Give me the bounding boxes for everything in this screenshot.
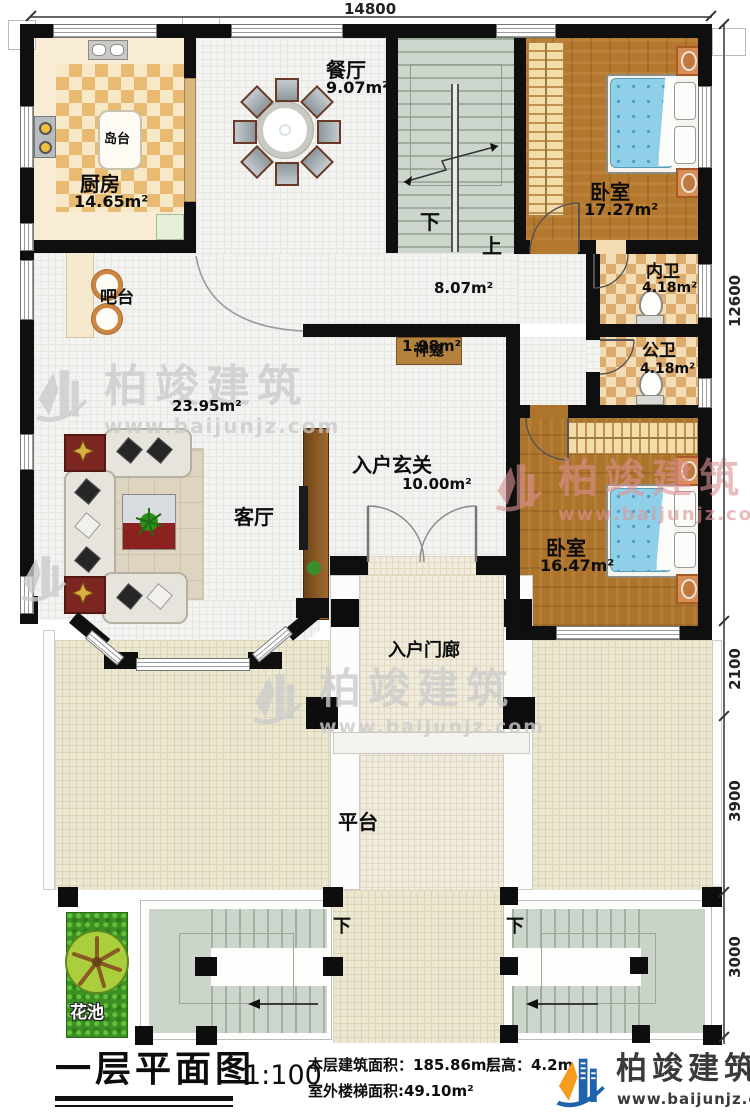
dimension-right-seg1: 2100 xyxy=(726,634,744,704)
sofa-left xyxy=(64,470,116,586)
platform-edge-right xyxy=(712,640,722,887)
title-underline xyxy=(55,1096,233,1101)
dimension-right-seg2: 3900 xyxy=(726,766,744,836)
wall xyxy=(506,416,520,628)
tv-screen xyxy=(299,486,308,550)
bath-hall-area: 1.98m² xyxy=(402,339,461,354)
dining-chair xyxy=(317,120,341,144)
sofa-bottom xyxy=(102,572,188,624)
outdoor-stair-area-stat: 室外楼梯面积:49.10m² xyxy=(308,1084,474,1099)
dimension-right-total: 12600 xyxy=(726,266,744,336)
brand-name: 柏竣建筑 xyxy=(616,1054,750,1086)
side-table xyxy=(64,434,106,472)
closet xyxy=(528,42,564,216)
column xyxy=(500,887,518,905)
column xyxy=(331,599,359,627)
brand-logo-icon xyxy=(548,1050,612,1112)
bed xyxy=(606,74,702,174)
bay-wall xyxy=(296,598,329,618)
wall xyxy=(578,240,596,254)
window-sill xyxy=(712,28,746,56)
window xyxy=(20,260,34,320)
flower-bed-label: 花池 xyxy=(70,1005,104,1022)
dimension-right-seg3: 3000 xyxy=(726,922,744,992)
stair-down-label: 下 xyxy=(333,918,351,936)
bay-window xyxy=(136,658,250,671)
bar-stool xyxy=(92,304,122,334)
outdoor-stair-left xyxy=(140,900,332,1040)
stair-center-rail xyxy=(451,84,459,252)
window xyxy=(20,223,34,251)
living-label: 客厅 xyxy=(234,507,274,527)
column xyxy=(135,1026,153,1045)
outdoor-stair-right xyxy=(503,900,712,1040)
column xyxy=(500,1025,518,1043)
window xyxy=(556,626,680,640)
column xyxy=(503,697,535,729)
wall xyxy=(476,556,520,575)
window xyxy=(698,86,712,168)
column xyxy=(323,957,343,976)
door-opening xyxy=(530,405,568,418)
island-label: 岛台 xyxy=(104,133,130,146)
closet xyxy=(568,422,698,454)
sofa-top xyxy=(104,428,192,478)
wall xyxy=(514,240,530,254)
wall xyxy=(386,24,398,253)
platform-walkway xyxy=(333,890,503,1043)
window xyxy=(231,24,343,38)
window xyxy=(53,24,157,38)
sliding-door xyxy=(184,78,196,202)
window xyxy=(20,576,34,614)
plan-title: 一层平面图 xyxy=(55,1052,255,1089)
floor-area-stat: 本层建筑面积：185.86m² xyxy=(308,1058,493,1073)
column xyxy=(58,887,78,907)
wall xyxy=(330,556,368,575)
column xyxy=(632,1025,650,1043)
bedroom-bottom-area: 16.47m² xyxy=(540,558,614,574)
bedroom-top-area: 17.27m² xyxy=(584,202,658,218)
column xyxy=(195,957,217,976)
title-underline xyxy=(55,1105,233,1107)
dimension-top-width: 14800 xyxy=(344,0,396,18)
wall xyxy=(568,405,712,418)
inner-bath-label: 内卫 xyxy=(646,264,680,281)
inner-bath-area: 4.18m² xyxy=(642,281,697,295)
kitchen-area: 14.65m² xyxy=(74,194,148,210)
dining-chair xyxy=(233,120,257,144)
column xyxy=(500,957,518,975)
foyer-label: 入户玄关 xyxy=(352,455,432,475)
dining-chair xyxy=(275,162,299,186)
bed xyxy=(606,484,702,578)
side-table xyxy=(64,576,106,614)
hallway-area: 8.07m² xyxy=(434,281,493,296)
window xyxy=(20,434,34,470)
bar-counter xyxy=(66,246,94,338)
column xyxy=(196,1026,217,1045)
wall xyxy=(303,324,520,337)
kitchen-appliance xyxy=(156,214,184,240)
wall xyxy=(626,240,712,254)
window xyxy=(698,378,712,408)
wall xyxy=(514,24,526,253)
kitchen-sink xyxy=(88,40,128,60)
column xyxy=(630,957,648,974)
bath-hall-floor xyxy=(518,337,586,405)
dining-chair xyxy=(275,78,299,102)
wall xyxy=(506,337,520,407)
dining-area: 9.07m² xyxy=(326,80,389,96)
wall xyxy=(20,240,192,253)
stove xyxy=(34,116,56,158)
brand-website: www.baijunjz.com xyxy=(617,1092,750,1107)
window xyxy=(20,106,34,168)
platform-label: 平台 xyxy=(338,812,378,832)
public-bath-label: 公卫 xyxy=(642,343,676,360)
porch-step xyxy=(333,732,530,754)
door-opening xyxy=(596,240,626,254)
stair-down-label: 下 xyxy=(506,918,524,936)
bar-label: 吧台 xyxy=(100,290,134,307)
column xyxy=(323,887,343,907)
window xyxy=(496,24,556,38)
door-opening xyxy=(586,340,600,372)
foyer-area: 10.00m² xyxy=(402,477,472,492)
living-area: 23.95m² xyxy=(172,399,242,414)
stair-up-label: 上 xyxy=(482,236,502,256)
platform-edge-left xyxy=(43,630,55,890)
column xyxy=(306,697,338,729)
porch-label: 入户门廊 xyxy=(388,642,460,660)
stair-down-label: 下 xyxy=(420,212,440,232)
window xyxy=(698,264,712,318)
public-bath-area: 4.18m² xyxy=(640,362,695,376)
floor-plan: 神龛 xyxy=(0,0,750,1117)
door-opening xyxy=(368,556,476,575)
door-opening xyxy=(530,240,578,254)
wall xyxy=(586,324,712,337)
coffee-table xyxy=(122,494,176,550)
